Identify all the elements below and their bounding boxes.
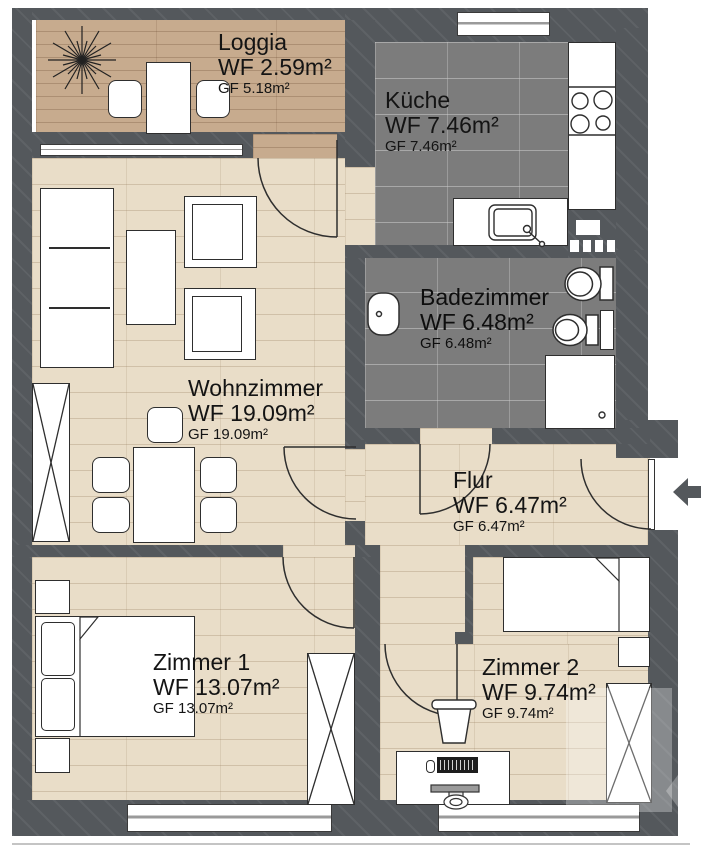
dining-chair <box>147 407 183 443</box>
window-room1 <box>127 804 332 832</box>
room-gf: GF 7.46m² <box>385 139 499 156</box>
armchair-seat <box>192 204 243 260</box>
keyboard-icon <box>437 757 478 773</box>
loggia-chair <box>108 80 142 118</box>
wardrobe-living <box>32 383 70 542</box>
wall <box>365 428 650 444</box>
room-gf: GF 6.48m² <box>420 336 549 353</box>
sofa-cushion-line <box>49 307 110 309</box>
room-name: Flur <box>453 468 567 493</box>
room-wf: WF 13.07m² <box>153 675 280 700</box>
room-label-zimmer2: Zimmer 2 WF 9.74m² GF 9.74m² <box>482 655 596 722</box>
room-gf: GF 9.74m² <box>482 706 596 723</box>
room-gf: GF 5.18m² <box>218 81 332 98</box>
room-wf: WF 2.59m² <box>218 55 332 80</box>
shaft-vent-slot <box>583 240 591 252</box>
room-name: Badezimmer <box>420 285 549 310</box>
room-name: Zimmer 2 <box>482 655 596 680</box>
nightstand <box>35 580 70 614</box>
armchair-seat <box>192 296 242 352</box>
room-gf: GF 6.47m² <box>453 519 567 536</box>
window-loggia <box>40 144 243 156</box>
dining-chair <box>200 497 237 533</box>
wall <box>616 250 648 436</box>
kitchen-counter-stove <box>568 42 616 210</box>
shaft-vent <box>576 220 600 235</box>
room-label-badezimmer: Badezimmer WF 6.48m² GF 6.48m² <box>420 285 549 352</box>
keyboard-keys <box>440 760 475 770</box>
wardrobe-room1 <box>307 653 355 805</box>
sofa <box>40 188 114 368</box>
dining-chair <box>92 457 130 493</box>
room-name: Küche <box>385 88 499 113</box>
room-wf: WF 6.48m² <box>420 310 549 335</box>
shaft-vent-slot <box>595 240 603 252</box>
doorway-room1 <box>283 545 355 557</box>
shower <box>545 355 615 429</box>
room-wf: WF 9.74m² <box>482 680 596 705</box>
dining-table <box>133 447 195 543</box>
pillow <box>41 622 75 676</box>
room-label-zimmer1: Zimmer 1 WF 13.07m² GF 13.07m² <box>153 650 280 717</box>
wall <box>465 557 473 644</box>
wall <box>465 545 650 557</box>
wall <box>345 20 375 167</box>
mouse-icon <box>426 760 435 773</box>
room-wf: WF 7.46m² <box>385 113 499 138</box>
nightstand <box>618 637 650 667</box>
bath-panel <box>600 310 614 350</box>
room-wf: WF 19.09m² <box>188 401 323 426</box>
wall <box>355 557 380 805</box>
room-label-loggia: Loggia WF 2.59m² GF 5.18m² <box>218 30 332 97</box>
room-label-kueche: Küche WF 7.46m² GF 7.46m² <box>385 88 499 155</box>
shaft-vent-slot <box>607 240 615 252</box>
pillow <box>41 678 75 731</box>
room-name: Loggia <box>218 30 332 55</box>
loggia-table <box>146 62 191 134</box>
room-gf: GF 19.09m² <box>188 427 323 444</box>
wall <box>455 632 473 644</box>
armchair <box>184 288 256 360</box>
kitchen-counter-sink <box>453 198 568 246</box>
room-label-wohnzimmer: Wohnzimmer WF 19.09m² GF 19.09m² <box>188 376 323 443</box>
bed-single <box>503 557 650 632</box>
doorway-living-hall <box>345 449 365 521</box>
window-kitchen <box>457 12 550 36</box>
dining-chair <box>92 497 130 533</box>
doorway-kitchen <box>345 167 375 245</box>
ground-line <box>12 843 690 845</box>
floor-hall-corridor <box>380 545 465 644</box>
dining-chair <box>200 457 237 493</box>
doorway-loggia <box>253 134 337 158</box>
room-name: Zimmer 1 <box>153 650 280 675</box>
wall <box>12 8 32 820</box>
wall <box>616 28 648 250</box>
room-wf: WF 6.47m² <box>453 493 567 518</box>
nightstand <box>35 738 70 773</box>
armchair <box>184 196 257 268</box>
entrance-door-leaf <box>648 459 655 530</box>
room-gf: GF 13.07m² <box>153 701 280 718</box>
room-name: Wohnzimmer <box>188 376 323 401</box>
wall <box>345 245 365 449</box>
room-label-flur: Flur WF 6.47m² GF 6.47m² <box>453 468 567 535</box>
sofa-cushion-line <box>49 247 110 249</box>
coffee-table <box>126 230 176 325</box>
shaft-vent-slot <box>570 240 579 252</box>
wall <box>12 8 345 20</box>
doorway-bathroom <box>420 428 492 444</box>
floor-plan: Loggia WF 2.59m² GF 5.18m² Küche WF 7.46… <box>0 0 701 849</box>
